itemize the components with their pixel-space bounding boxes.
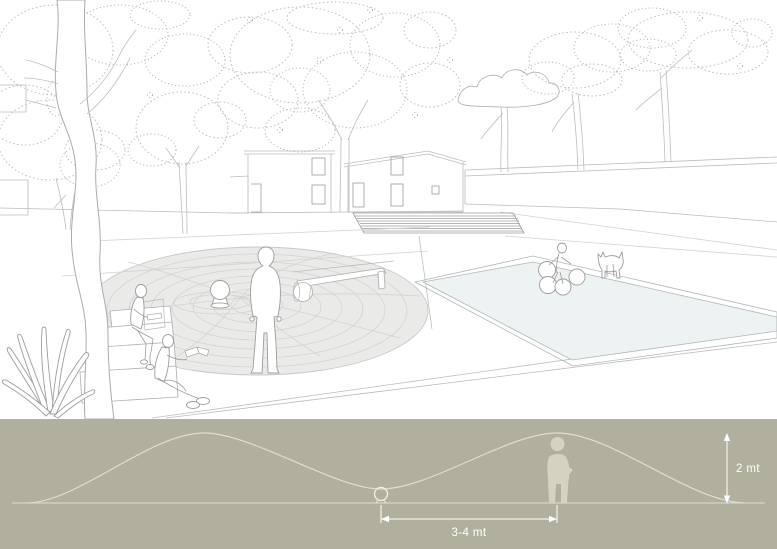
center-tree: [218, 2, 460, 212]
reflecting-pool: [415, 256, 777, 366]
farmhouse-right: [344, 151, 466, 212]
umbrella-pine-3: [618, 8, 772, 162]
door: [251, 184, 261, 212]
boundary-wall: [465, 157, 777, 222]
window: [312, 158, 325, 175]
farmhouse-left: [230, 151, 335, 213]
umbrella-pine-1: [458, 70, 559, 172]
section-diagram: 3-4 mt 2 mt: [0, 419, 777, 549]
distance-label: 3-4 mt: [452, 527, 487, 539]
window: [312, 185, 325, 204]
window: [432, 186, 439, 194]
window: [353, 183, 364, 207]
architectural-rendering: 3-4 mt 2 mt: [0, 0, 777, 549]
window: [391, 184, 403, 206]
plaza-ground-lines: [0, 208, 777, 257]
section-background: [0, 419, 777, 549]
left-tree-canopy: [0, 1, 343, 170]
pavement-grate: [353, 213, 524, 233]
perspective-scene-illustration: [0, 0, 777, 419]
height-label: 2 mt: [736, 463, 760, 475]
